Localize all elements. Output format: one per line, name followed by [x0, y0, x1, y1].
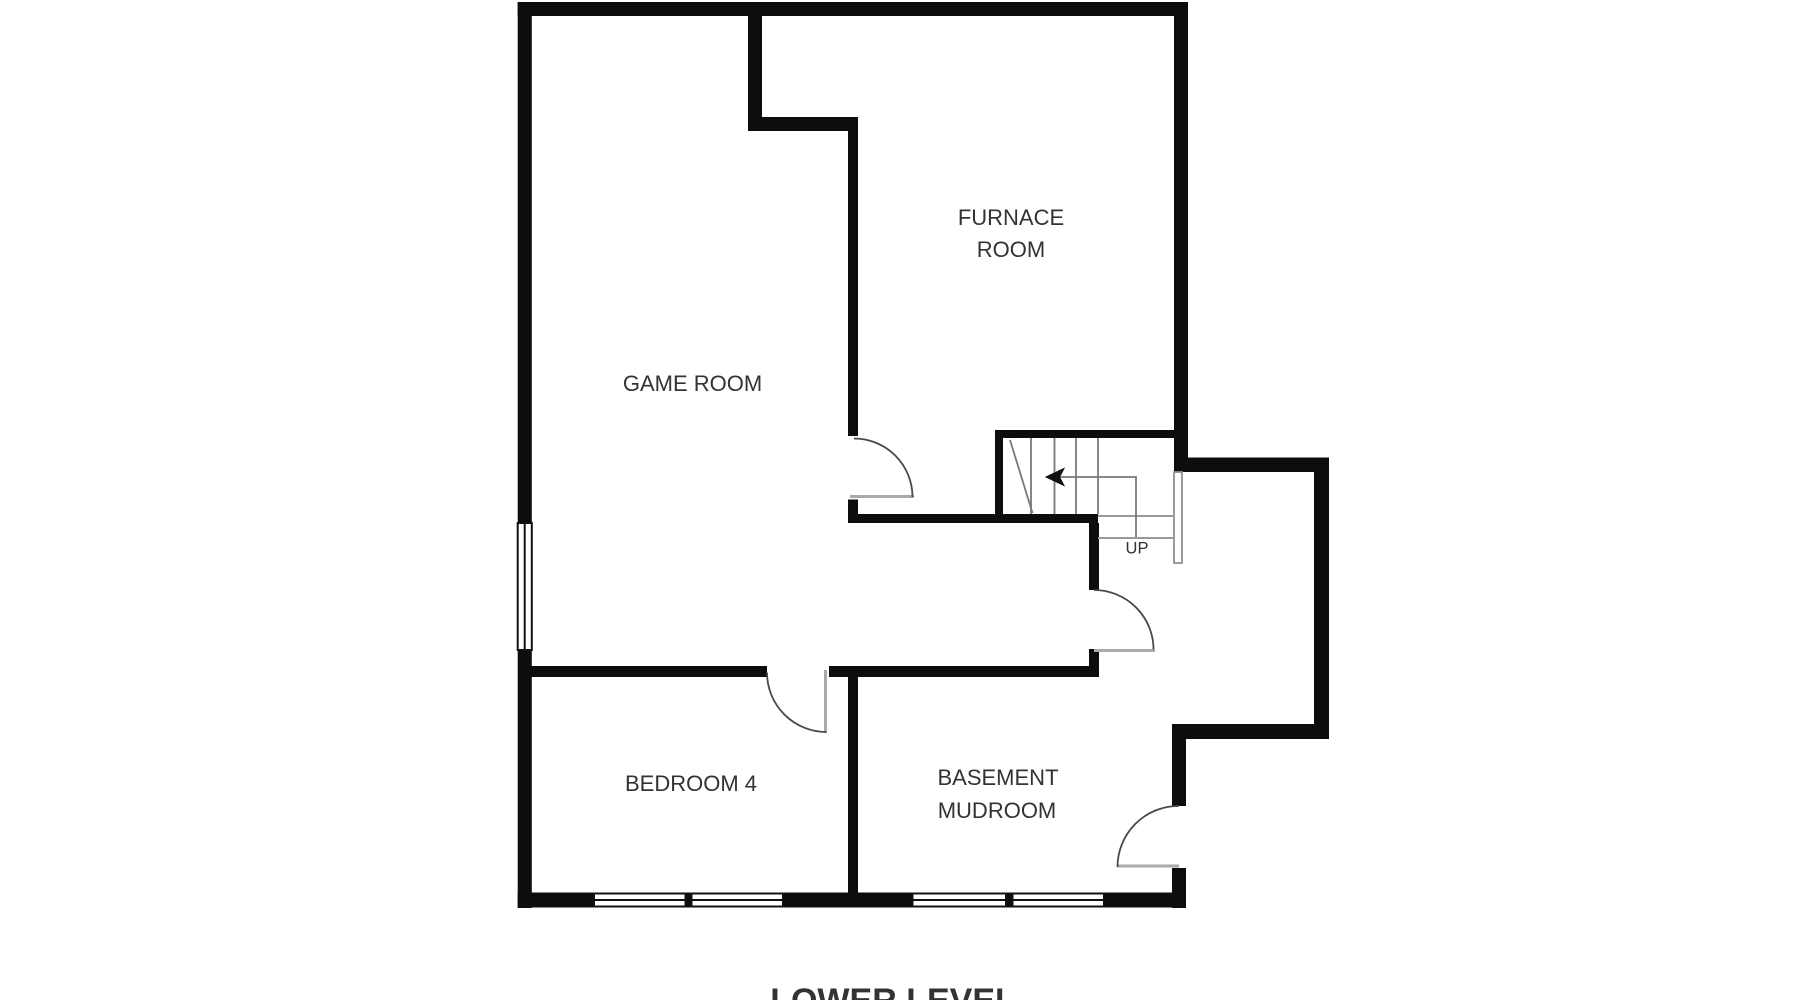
svg-text:LOWER LEVEL: LOWER LEVEL — [770, 982, 1016, 1000]
svg-text:GAME ROOM: GAME ROOM — [623, 371, 762, 396]
svg-text:MUDROOM: MUDROOM — [938, 798, 1057, 823]
svg-text:UP: UP — [1126, 540, 1149, 558]
svg-text:FURNACE: FURNACE — [958, 205, 1064, 230]
svg-text:BASEMENT: BASEMENT — [937, 765, 1058, 790]
svg-text:ROOM: ROOM — [977, 237, 1045, 262]
svg-text:BEDROOM 4: BEDROOM 4 — [625, 771, 757, 796]
